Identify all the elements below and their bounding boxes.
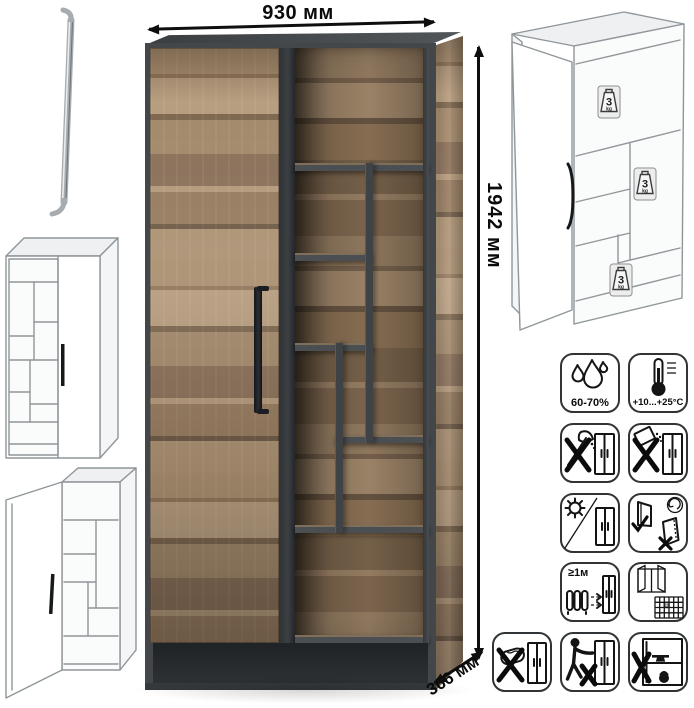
shelf: [335, 435, 429, 443]
temperature-icon: +10...+25°C: [628, 353, 688, 413]
no-wet-cleaning-icon: [492, 632, 552, 692]
shelf: [295, 253, 373, 261]
shelf: [295, 525, 429, 533]
open-door-cabinet-sketch-svg: [0, 458, 140, 700]
door-adjustment-icon: [628, 493, 688, 553]
anvil-glyph: [652, 655, 669, 662]
temperature-label: +10...+25°C: [630, 397, 686, 408]
shelf: [295, 635, 429, 643]
humidity-icon: 60-70%: [560, 353, 620, 413]
heat-source-distance-icon: ≥1м: [560, 562, 620, 622]
radiator-glyph: [567, 591, 588, 614]
handle-sketch-svg: [33, 6, 93, 224]
open-door-cabinet-sketch: [0, 458, 140, 700]
humidity-label: 60-70%: [562, 397, 618, 409]
grid-glyph: [655, 597, 683, 618]
no-overloading-icon: [628, 632, 688, 692]
center-partition: [279, 48, 295, 643]
interior-right-wall: [423, 48, 429, 643]
shelf-load-unit: kg: [618, 285, 624, 291]
ventilation-icon: 21: [628, 562, 688, 622]
sketch-door-handle: [61, 344, 65, 386]
shelf: [295, 343, 373, 351]
height-dimension-arrow: [477, 47, 480, 658]
vertical-divider: [365, 163, 373, 443]
closed-cabinet-sketch-svg: [0, 226, 132, 466]
door-handle: [254, 287, 262, 413]
vertical-divider: [335, 343, 343, 533]
shelf-load-badge: 3 kg: [598, 86, 620, 118]
cabinet-photo: [143, 28, 465, 695]
open-window-glyph: [638, 566, 665, 593]
shelf: [295, 163, 429, 171]
product-infographic: { "dimensions": { "width": "930 мм", "he…: [0, 0, 694, 700]
grid-cell-label: 21: [664, 603, 669, 608]
sun-glyph: [566, 499, 585, 518]
heat-distance-label: ≥1м: [568, 567, 588, 579]
shelf-load-unit: kg: [642, 189, 648, 195]
width-dimension-label: 930 мм: [243, 2, 353, 25]
shelf-load-unit: kg: [606, 107, 612, 113]
check-mark: [633, 517, 647, 530]
no-direct-sunlight-icon: [560, 493, 620, 553]
cabinet-front: [145, 43, 436, 690]
no-abrasive-powder-icon: [628, 423, 688, 483]
no-sharp-tools-icon: [560, 423, 620, 483]
interior-load-sketch: 3 kg 3 kg 3 kg: [498, 6, 694, 340]
shelf-load-badge: 3 kg: [610, 264, 632, 296]
handle-sketch: [33, 6, 93, 224]
shelf-load-badge: 3 kg: [634, 168, 656, 200]
interior-load-sketch-svg: 3 kg 3 kg 3 kg: [498, 6, 694, 340]
cabinet-side-shading: [436, 36, 463, 690]
no-climbing-icon: [560, 632, 620, 692]
closed-cabinet-sketch: [0, 226, 132, 466]
